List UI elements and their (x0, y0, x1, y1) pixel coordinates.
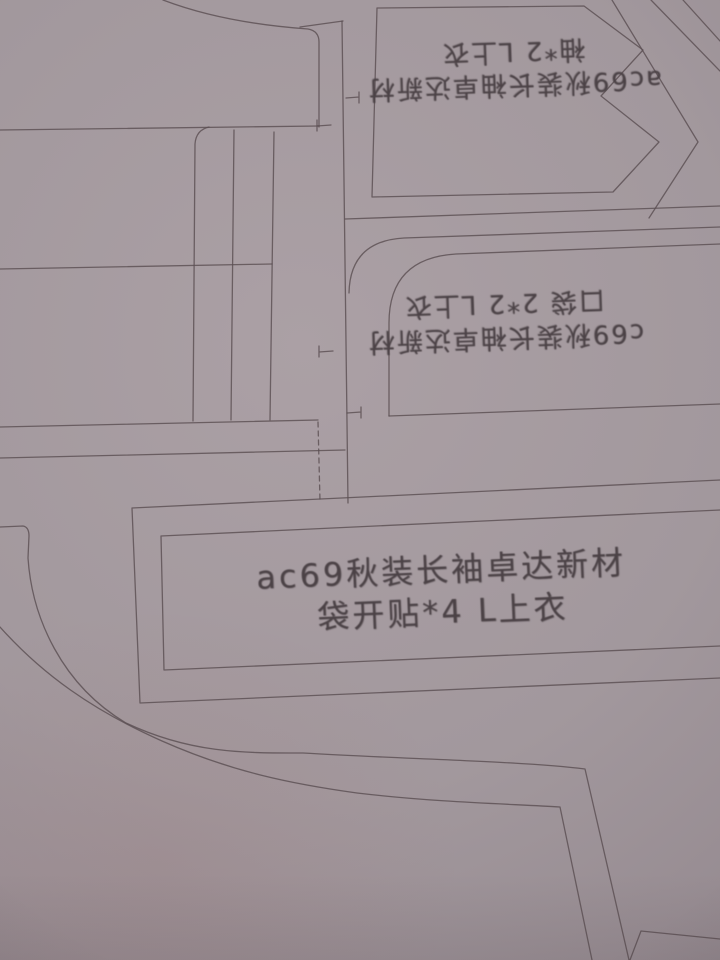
placket-vline-2 (231, 130, 234, 420)
bottom-right-corner-piece (630, 931, 720, 960)
placket-vline-3 (270, 132, 274, 420)
left-piece-mid-hline (0, 264, 272, 269)
pattern-sheet-photo: ac69秋装长袖卓达新材 袖*2 L上衣 c69秋装长袖卓达新材 口袋 2*2 … (0, 0, 720, 960)
sleeve-piece-label: ac69秋装长袖卓达新材 袖*2 L上衣 (365, 29, 663, 105)
pocket-outer-cutline (349, 227, 720, 293)
neckline-branch-line (300, 21, 343, 27)
bottom-outer-cut-curve (0, 627, 592, 960)
left-piece-hline-b (0, 450, 345, 458)
divider-hline (345, 206, 720, 219)
left-piece-top-hline (0, 126, 319, 130)
notch-mark-4 (347, 407, 361, 418)
pattern-lines (0, 0, 720, 960)
center-cut-vline (342, 21, 348, 503)
dashed-vline (318, 422, 320, 501)
neckline-curve (163, 0, 319, 127)
placket-rounded-line (193, 127, 209, 421)
corner-piece-diagonal-2 (683, 0, 720, 41)
pocket-piece-bottom (389, 404, 720, 416)
pocket-piece-label: c69秋装长袖卓达新材 口袋 2*2 L上衣 (351, 281, 659, 360)
notch-mark-1 (346, 92, 359, 103)
pocket-facing-label: ac69秋装长袖卓达新材 袋开贴*4 L上衣 (230, 540, 653, 642)
notch-mark-3 (319, 346, 333, 357)
left-piece-hline-a (0, 420, 318, 427)
